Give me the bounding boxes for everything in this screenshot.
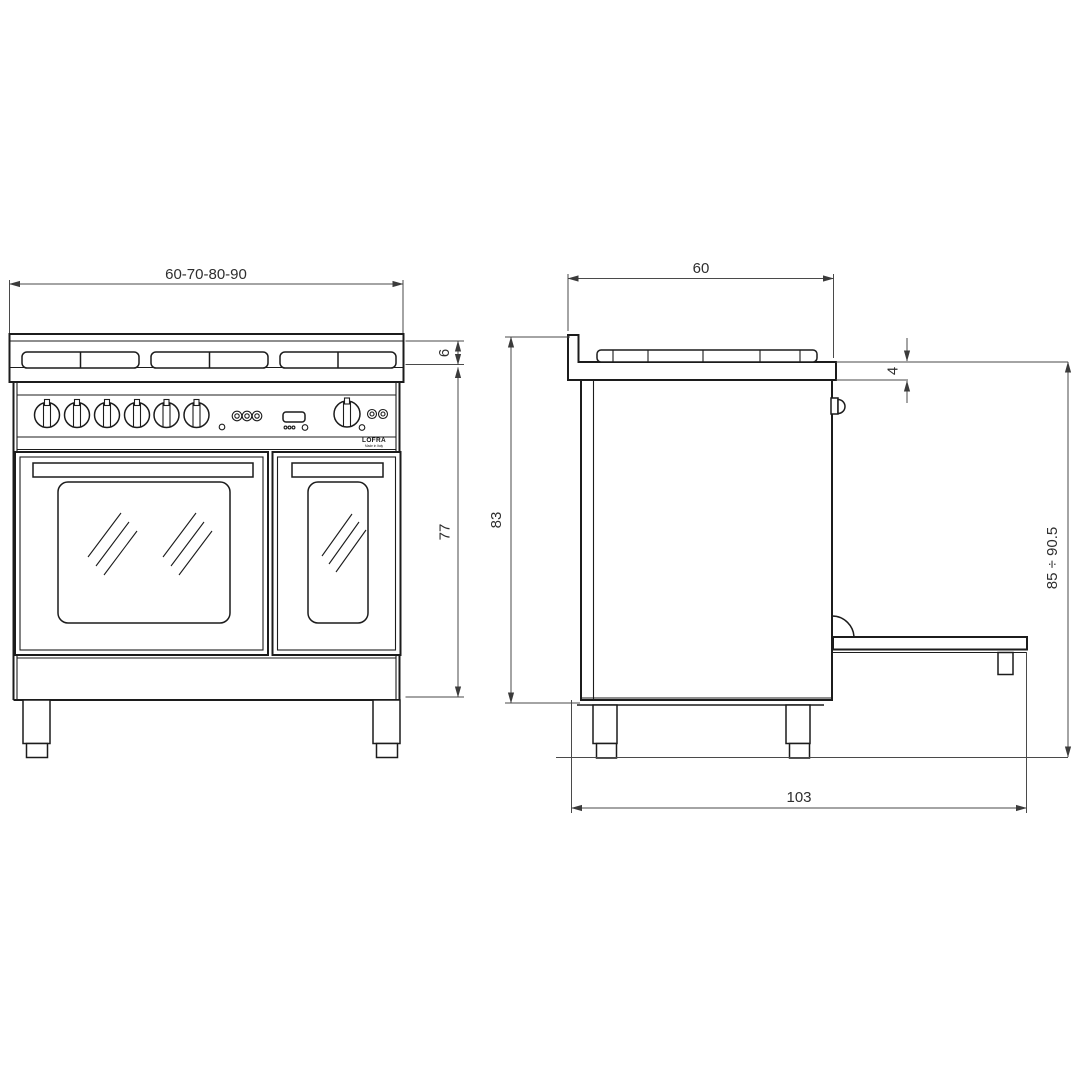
dim-label-worktop-overhang: 4 [885,367,902,375]
display-screen [283,412,305,422]
dim-hob-height: 6 [406,341,465,365]
knob-notch [75,400,80,406]
display-dot [288,426,291,429]
switch-buttons [368,410,388,419]
dim-depth: 60 [568,260,834,358]
side-control-knob-profile [831,398,845,414]
display-button [302,425,308,431]
open-oven-door [832,616,1027,675]
dim-label-depth-door-open: 103 [786,789,811,806]
foot-tip [27,744,48,758]
dim-overall-height: 85 ÷ 90.5 [1044,362,1068,757]
knob-notch [45,400,50,406]
dim-label-overall-height: 85 ÷ 90.5 [1044,527,1061,589]
dim-label-hob-height: 6 [436,349,453,357]
knob-notch [105,400,110,406]
control-buttons [232,411,262,421]
side-grate-profile [597,350,817,362]
dim-label-height-to-worktop: 83 [488,512,505,529]
foot-upper [786,705,810,744]
button-core [245,414,249,418]
foot-upper [593,705,617,744]
control-panel: LOFRA Made in Italy [17,395,396,450]
knob-cap [838,400,845,414]
knob-notch [164,400,169,406]
foot-tip [377,744,398,758]
button-core [235,414,239,418]
knob-body [35,403,60,428]
oven-door-window [308,482,368,623]
side-feet [593,705,810,758]
oven-door-window [58,482,230,623]
oven-knob [334,398,360,427]
button-core [255,414,259,418]
door-hinge-arc [832,616,854,638]
knob-body [184,403,209,428]
front-view: LOFRA Made in Italy [10,266,465,758]
burner-knob [35,400,60,428]
dim-body-height: 77 [406,368,465,698]
knob-stem [831,398,838,414]
open-door-panel [833,637,1027,650]
dim-label-body-height: 77 [437,524,454,541]
side-view: 60 4 83 85 ÷ 90.5 103 [488,260,1068,813]
brand-logo: LOFRA Made in Italy [362,437,386,448]
side-body-outline [581,380,832,700]
oven-door-main [15,452,268,655]
side-body [577,380,832,705]
dim-width-options: 60-70-80-90 [10,266,404,333]
burner-knob [125,400,150,428]
front-grates [22,352,396,368]
foot-upper [23,700,50,744]
knob-notch [135,400,140,406]
knob-body [95,403,120,428]
display-dot [292,426,295,429]
indicator-dot [219,424,225,430]
display-dot [284,426,287,429]
brand-tagline: Made in Italy [365,444,383,448]
burner-knob [184,400,209,428]
dim-height-to-worktop: 83 [488,337,580,703]
technical-drawing-canvas: LOFRA Made in Italy [0,0,1080,1080]
dim-label-depth: 60 [693,260,710,277]
button-core [370,412,374,416]
dim-worktop-overhang: 4 [836,338,1068,403]
burner-knob [65,400,90,428]
button-core [381,412,385,416]
foot-tip [597,744,617,759]
knob-body [154,403,179,428]
front-feet [23,700,400,758]
side-grate-strip [597,350,817,362]
foot-upper [373,700,400,744]
open-door-handle [998,653,1013,675]
foot-tip [790,744,810,759]
dim-label-width-options: 60-70-80-90 [165,266,247,283]
indicator-dot [359,425,365,431]
burner-knob [95,400,120,428]
knob-body [334,401,360,427]
knob-notch [194,400,199,406]
brand-name: LOFRA [362,437,386,444]
oven-door-handle [292,463,383,477]
display-window [283,412,308,430]
oven-door-secondary [273,452,401,655]
oven-door-handle [33,463,253,477]
cooker-dimension-drawing: LOFRA Made in Italy [0,0,1080,1080]
knob-notch [345,398,350,404]
knob-body [65,403,90,428]
knob-body [125,403,150,428]
burner-knob [154,400,179,428]
